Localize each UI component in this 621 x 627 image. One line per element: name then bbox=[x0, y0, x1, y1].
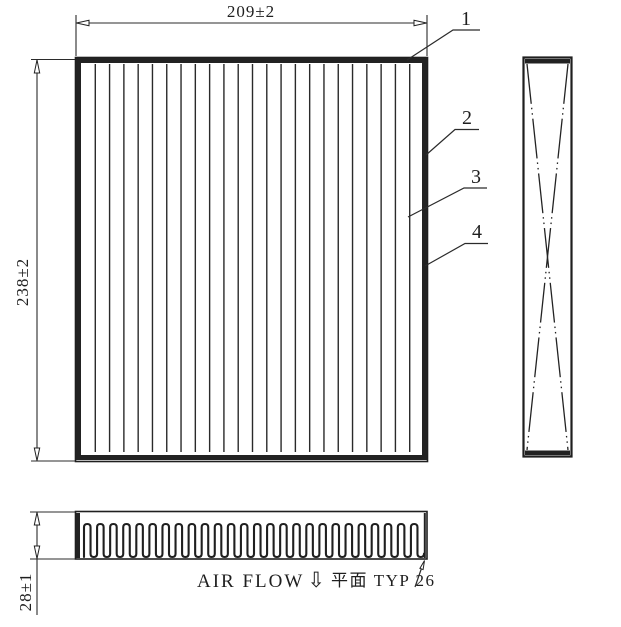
front-frame-band bbox=[79, 61, 425, 458]
dim-depth bbox=[30, 512, 75, 615]
bottom-frame bbox=[76, 512, 428, 560]
dim-depth-arrow-top bbox=[34, 513, 39, 526]
drawing-canvas: 209±2 238±2 28±1 1 2 3 4 AIR FLOW⇩ 平面 TY… bbox=[0, 0, 621, 627]
dim-height-arrow-top bbox=[34, 60, 39, 73]
side-top-band bbox=[525, 59, 570, 64]
dim-depth-label: 28±1 bbox=[16, 573, 36, 612]
pleat-note-arrowhead bbox=[420, 561, 425, 570]
callout-3: 3 bbox=[471, 167, 481, 187]
dim-width-arrow-left bbox=[77, 20, 90, 25]
air-flow-note: AIR FLOW⇩ bbox=[197, 570, 325, 591]
side-bottom-band bbox=[525, 451, 570, 456]
dim-height-arrow-bottom bbox=[34, 448, 39, 461]
filter-technical-drawing bbox=[0, 0, 621, 627]
dim-width-arrow-right bbox=[414, 20, 427, 25]
callout-2-leader bbox=[426, 130, 479, 156]
air-flow-label: AIR FLOW bbox=[197, 571, 304, 592]
dim-width-label: 209±2 bbox=[227, 2, 275, 22]
dim-height-label: 238±2 bbox=[13, 258, 33, 306]
callout-4: 4 bbox=[472, 222, 482, 242]
callout-1-leader bbox=[407, 30, 480, 60]
callout-4-leader bbox=[425, 244, 488, 267]
air-flow-down-arrow-icon: ⇩ bbox=[307, 568, 325, 592]
callout-1: 1 bbox=[461, 9, 471, 29]
front-view bbox=[76, 58, 428, 462]
callout-2: 2 bbox=[462, 108, 472, 128]
side-view bbox=[524, 58, 572, 457]
callout-3-leader bbox=[408, 188, 487, 217]
dim-height bbox=[31, 60, 75, 462]
dim-depth-arrow-bottom bbox=[34, 546, 39, 559]
front-frame-outer bbox=[76, 58, 428, 462]
pleat-note-label: 平面 TYP 26 bbox=[331, 572, 436, 589]
front-pleat-lines bbox=[95, 64, 409, 452]
bottom-view bbox=[76, 512, 428, 560]
bottom-pleat-wave bbox=[84, 524, 424, 557]
